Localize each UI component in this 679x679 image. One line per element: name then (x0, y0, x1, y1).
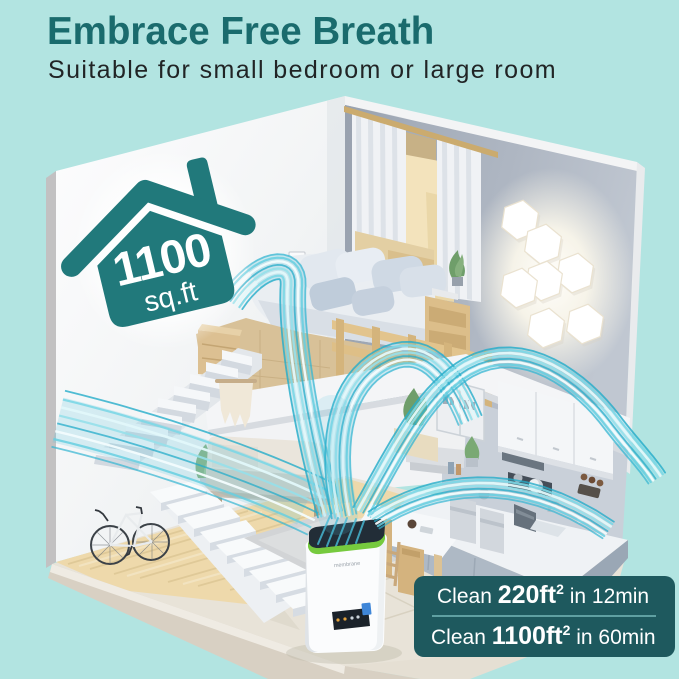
svg-text:Clean 220ft2 in 12min: Clean 220ft2 in 12min (437, 581, 649, 609)
svg-text:Suitable for small bedroom or: Suitable for small bedroom or large room (48, 56, 557, 84)
svg-text:Clean 1100ft2 in 60min: Clean 1100ft2 in 60min (431, 622, 656, 650)
svg-text:Embrace Free Breath: Embrace Free Breath (47, 10, 434, 53)
